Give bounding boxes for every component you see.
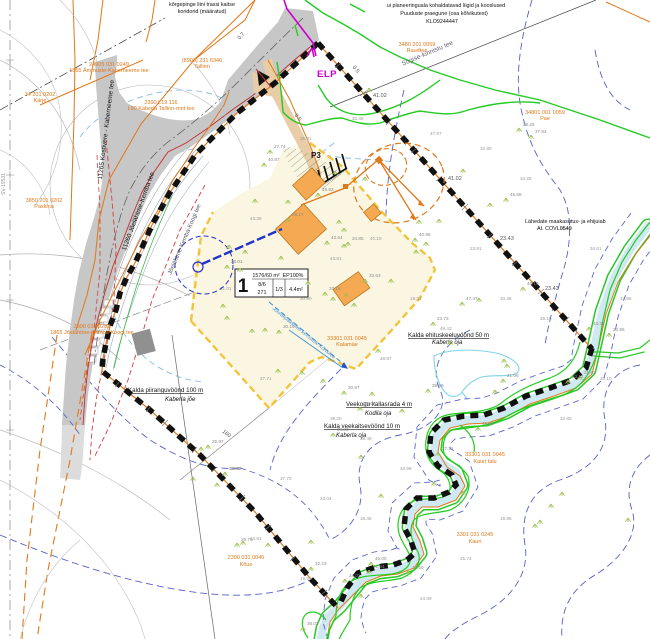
svg-text:38.16: 38.16 (540, 316, 552, 321)
svg-text:21.08: 21.08 (507, 373, 519, 378)
svg-text:41.02: 41.02 (373, 93, 387, 99)
svg-text:25.74: 25.74 (460, 556, 472, 561)
svg-text:19.91: 19.91 (300, 576, 312, 581)
svg-text:At. COVL0549: At. COVL0549 (537, 226, 572, 232)
svg-text:33.99: 33.99 (400, 466, 412, 471)
svg-text:34.38: 34.38 (500, 296, 512, 301)
svg-text:41.84: 41.84 (373, 564, 385, 569)
svg-text:27.71: 27.71 (260, 376, 272, 381)
svg-text:47.60: 47.60 (412, 565, 424, 570)
svg-text:43.37: 43.37 (593, 321, 605, 326)
svg-text:48.87: 48.87 (380, 356, 392, 361)
svg-text:32.48: 32.48 (352, 116, 364, 121)
svg-text:32.23: 32.23 (315, 561, 327, 566)
svg-text:35.91: 35.91 (300, 136, 312, 141)
svg-text:43.64: 43.64 (331, 235, 343, 240)
svg-text:23.73: 23.73 (437, 316, 449, 321)
svg-text:23.12: 23.12 (572, 374, 584, 379)
svg-text:1865 Jõelähtme-Kemba-Koogi tee: 1865 Jõelähtme-Kemba-Koogi tee (50, 330, 133, 336)
svg-text:24.02: 24.02 (349, 573, 361, 578)
svg-text:Kodila oja: Kodila oja (365, 411, 392, 417)
svg-text:271: 271 (258, 290, 267, 296)
svg-text:Kalda ehituskeeluvöönd 50 m: Kalda ehituskeeluvöönd 50 m (408, 332, 489, 339)
svg-text:KLO9244447: KLO9244447 (426, 19, 458, 25)
svg-text:47.57: 47.57 (430, 131, 442, 136)
svg-text:28.39: 28.39 (337, 427, 349, 432)
svg-text:45.00: 45.00 (375, 556, 387, 561)
svg-text:49.64: 49.64 (482, 421, 494, 426)
svg-text:32.85: 32.85 (560, 416, 572, 421)
svg-text:kõrgepinge liini trassi kaitse: kõrgepinge liini trassi kaitse (169, 2, 235, 8)
svg-text:41.02: 41.02 (448, 176, 462, 182)
svg-text:18.96: 18.96 (500, 516, 512, 521)
svg-text:20.86: 20.86 (613, 327, 625, 332)
svg-text:1: 1 (238, 276, 249, 297)
svg-text:Puuduste praegune (osa kõlviku: Puuduste praegune (osa kõlvikutest) (400, 11, 488, 17)
svg-text:23.43: 23.43 (500, 236, 514, 242)
svg-text:40.96: 40.96 (419, 232, 431, 237)
svg-text:SV-19531: SV-19531 (1, 173, 7, 195)
svg-text:36.02: 36.02 (307, 621, 319, 626)
svg-text:44.96: 44.96 (620, 296, 632, 301)
svg-text:18.48: 18.48 (360, 516, 372, 521)
svg-text:Kaberla oja: Kaberla oja (336, 433, 367, 439)
svg-text:43.91: 43.91 (330, 256, 342, 261)
svg-text:Kalamäe: Kalamäe (336, 342, 358, 348)
svg-text:Lähedate maakasutus- ja ehijui: Lähedate maakasutus- ja ehijuiab (525, 219, 606, 225)
svg-text:34.61: 34.61 (590, 246, 602, 251)
svg-text:Paskina: Paskina (34, 204, 55, 210)
svg-text:49.43: 49.43 (440, 326, 452, 331)
svg-text:4.4m²: 4.4m² (289, 287, 303, 293)
svg-text:Tallinn: Tallinn (194, 64, 210, 70)
svg-text:23.43: 23.43 (545, 286, 559, 292)
svg-text:1865 Ämmuste-Kaberneeme tee: 1865 Ämmuste-Kaberneeme tee (69, 67, 149, 74)
svg-text:32.10: 32.10 (600, 376, 612, 381)
svg-text:31.63: 31.63 (584, 370, 596, 375)
svg-text:1576/60 m²: 1576/60 m² (252, 273, 279, 279)
svg-text:koridorid (määratud): koridorid (määratud) (178, 9, 227, 15)
svg-text:19.34: 19.34 (410, 296, 422, 301)
svg-text:2390 031 0046: 2390 031 0046 (228, 555, 265, 561)
svg-text:32.63: 32.63 (369, 273, 381, 278)
svg-text:36.25: 36.25 (523, 122, 535, 127)
svg-text:ui planeeringuala kohaldatavad: ui planeeringuala kohaldatavad liigid ja… (387, 3, 505, 9)
svg-text:47.47: 47.47 (466, 296, 478, 301)
svg-text:39.67: 39.67 (364, 401, 376, 406)
svg-text:L90 Kaberla Tallinn-mnt tee: L90 Kaberla Tallinn-mnt tee (128, 106, 195, 112)
svg-text:38.99: 38.99 (432, 383, 444, 388)
svg-text:48.92: 48.92 (322, 187, 334, 192)
svg-text:28.01: 28.01 (231, 259, 243, 264)
svg-text:26.97: 26.97 (212, 439, 224, 444)
svg-text:Kaberla jõe: Kaberla jõe (165, 397, 196, 403)
svg-text:ELP: ELP (317, 69, 337, 80)
svg-text:1/3: 1/3 (275, 287, 283, 293)
svg-text:37.84: 37.84 (535, 129, 547, 134)
svg-text:23.91: 23.91 (470, 246, 482, 251)
svg-text:Kärje: Kärje (34, 98, 47, 104)
svg-text:P3: P3 (311, 151, 321, 160)
svg-text:38.17: 38.17 (292, 212, 304, 217)
svg-text:37.16: 37.16 (329, 286, 341, 291)
svg-text:Pae: Pae (540, 116, 550, 122)
svg-text:3301 031 0245: 3301 031 0245 (457, 532, 494, 538)
svg-text:43.38: 43.38 (250, 216, 262, 221)
svg-text:Kõue: Kõue (240, 562, 253, 568)
svg-text:29.79: 29.79 (241, 537, 253, 542)
svg-text:45.66: 45.66 (510, 192, 522, 197)
svg-text:Kaberla oja: Kaberla oja (432, 340, 463, 346)
svg-text:40.19: 40.19 (370, 236, 382, 241)
svg-text:EP100%: EP100% (283, 273, 304, 279)
svg-text:27.74: 27.74 (274, 144, 286, 149)
svg-text:Kauri: Kauri (469, 539, 482, 545)
svg-text:30.97: 30.97 (348, 385, 360, 390)
svg-text:23.04: 23.04 (320, 496, 332, 501)
svg-text:32.90: 32.90 (480, 146, 492, 151)
svg-text:Veekogu kallasrada 4 m: Veekogu kallasrada 4 m (346, 401, 412, 408)
svg-text:Kalda veekaitsevöönd 10 m: Kalda veekaitsevöönd 10 m (324, 423, 400, 430)
svg-text:33301 031 0045: 33301 031 0045 (465, 452, 505, 458)
svg-text:Kalda piiranguvöönd 100 m: Kalda piiranguvöönd 100 m (128, 387, 203, 394)
svg-text:8/6: 8/6 (258, 282, 266, 288)
svg-text:24.09: 24.09 (420, 596, 432, 601)
svg-text:34.25: 34.25 (520, 176, 532, 181)
svg-text:40.16: 40.16 (527, 281, 539, 286)
svg-text:37.22: 37.22 (454, 335, 466, 340)
svg-text:39.20: 39.20 (330, 416, 342, 421)
svg-text:37.31: 37.31 (442, 446, 454, 451)
svg-text:Kauri talu: Kauri talu (473, 459, 496, 465)
svg-text:34.85: 34.85 (352, 236, 364, 241)
svg-text:37.70: 37.70 (280, 476, 292, 481)
svg-text:40.87: 40.87 (268, 157, 280, 162)
svg-text:32.81: 32.81 (229, 466, 241, 471)
svg-text:30.10: 30.10 (283, 324, 295, 329)
